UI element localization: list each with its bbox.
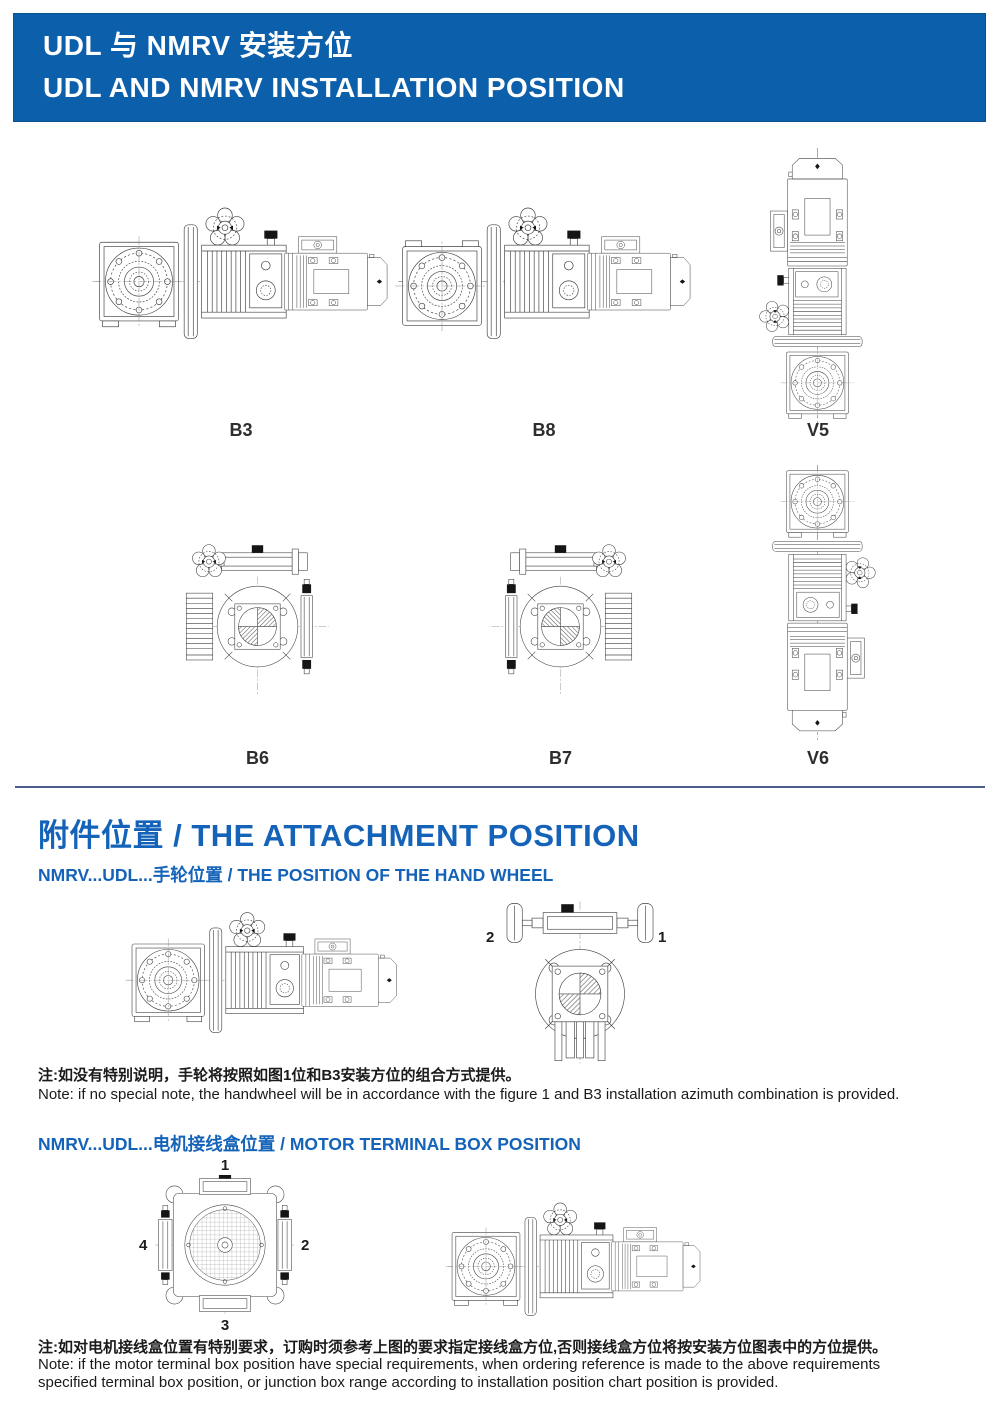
terminal-position-1-label: 1 xyxy=(155,1157,295,1174)
page-header-banner: UDL 与 NMRV 安装方位 UDL AND NMRV INSTALLATIO… xyxy=(13,13,986,122)
figure-label-b3: B3 xyxy=(95,420,387,441)
figure-label-b6: B6 xyxy=(185,748,330,769)
installation-figure-v5-drawing xyxy=(752,148,884,423)
installation-figure-b3-drawing xyxy=(95,200,387,353)
page-title-chinese: UDL 与 NMRV 安装方位 xyxy=(43,25,985,67)
handwheel-position-2-label: 2 xyxy=(486,929,494,946)
handwheel-note-english: Note: if no special note, the handwheel … xyxy=(38,1086,899,1103)
installation-figure-v6-drawing xyxy=(752,465,884,740)
handwheel-position-1-label: 1 xyxy=(658,929,666,946)
figure-label-b7: B7 xyxy=(488,748,633,769)
terminal-position-2-label: 2 xyxy=(301,1237,309,1254)
terminal-box-subtitle: NMRV...UDL...电机接线盒位置 / MOTOR TERMINAL BO… xyxy=(38,1131,581,1156)
installation-figure-b8-drawing xyxy=(398,200,690,353)
terminal-position-4-label: 4 xyxy=(139,1237,147,1254)
terminal-box-side-view-drawing xyxy=(448,1196,700,1328)
section-divider xyxy=(15,786,985,788)
installation-figure-b6-drawing xyxy=(185,540,330,698)
catalog-page: UDL 与 NMRV 安装方位 UDL AND NMRV INSTALLATIO… xyxy=(0,0,1000,1402)
handwheel-side-view-drawing xyxy=(128,905,396,1046)
installation-figure-b7-drawing xyxy=(488,540,633,698)
handwheel-end-view-drawing xyxy=(500,900,660,1067)
figure-label-b8: B8 xyxy=(398,420,690,441)
terminal-note-english-line2: specified terminal box position, or junc… xyxy=(38,1374,778,1391)
terminal-note-english-line1: Note: if the motor terminal box position… xyxy=(38,1356,880,1373)
figure-label-v5: V5 xyxy=(752,420,884,441)
terminal-box-end-view-drawing xyxy=(155,1175,295,1315)
handwheel-note-chinese: 注:如没有特别说明，手轮将按照如图1位和B3安装方位的组合方式提供。 xyxy=(38,1064,521,1085)
page-title-english: UDL AND NMRV INSTALLATION POSITION xyxy=(43,67,985,109)
handwheel-subtitle: NMRV...UDL...手轮位置 / THE POSITION OF THE … xyxy=(38,862,553,887)
figure-label-v6: V6 xyxy=(752,748,884,769)
terminal-note-chinese: 注:如对电机接线盒位置有特别要求，订购时须参考上图的要求指定接线盒方位,否则接线… xyxy=(38,1336,887,1357)
terminal-position-3-label: 3 xyxy=(155,1317,295,1334)
attachment-section-title: 附件位置 / THE ATTACHMENT POSITION xyxy=(38,810,640,855)
